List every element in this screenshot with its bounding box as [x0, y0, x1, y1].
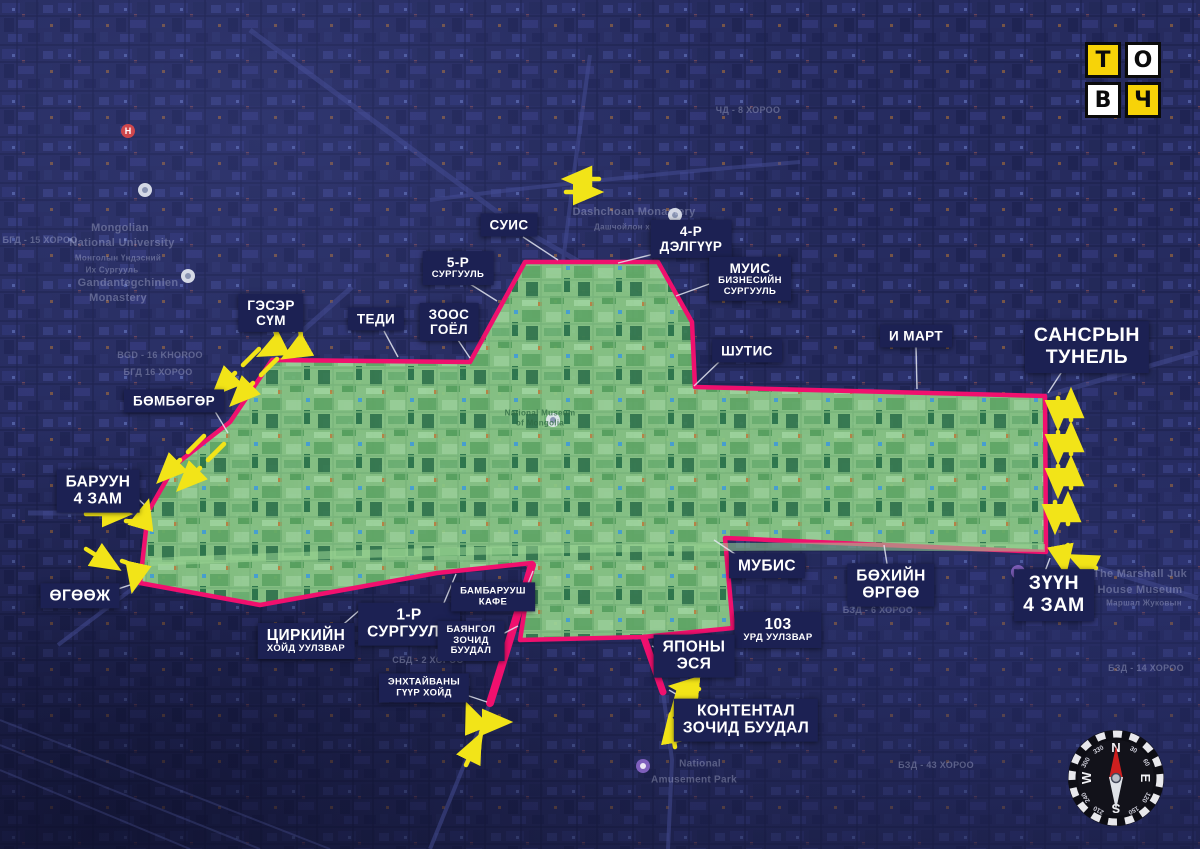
compass-e: E: [1138, 774, 1153, 783]
map-label-enkhtaivany: ЭНХТАЙВАНЫГҮҮР ХОЙД: [379, 673, 469, 702]
basemap-label: National University: [69, 237, 174, 249]
map-label-line: КАФЕ: [460, 597, 526, 608]
map-label-line: ЦИРКИЙН: [267, 627, 346, 644]
map-label-sansryn-tunel: САНСРЫНТУНЕЛЬ: [1025, 321, 1149, 373]
annotated-satellite-map: H: [0, 0, 1200, 849]
map-label-ogooj: ӨГӨӨЖ: [41, 583, 120, 608]
map-label-tedi: ТЕДИ: [348, 307, 404, 330]
logo-tile: Ч: [1125, 82, 1161, 118]
map-label-e-mart: И МАРТ: [880, 324, 952, 347]
basemap-label: House Museum: [1098, 584, 1183, 596]
map-pin-poi: [138, 183, 152, 197]
map-label-line: 4 ЗАМ: [1023, 595, 1085, 617]
map-label-line: ХОЙД УУЛЗВАР: [267, 644, 346, 655]
map-label-line: СУИС: [489, 217, 528, 232]
map-label-line: ГҮҮР ХОЙД: [388, 688, 460, 699]
logo-tile: Т: [1085, 42, 1121, 78]
map-label-line: И МАРТ: [889, 328, 943, 343]
map-pin-park: [636, 759, 650, 773]
basemap-label: BGD - 16 KHOROO: [117, 350, 203, 360]
map-label-bokhiin-orgoo: БӨХИЙНӨРГӨӨ: [847, 564, 934, 607]
basemap-label: Их Сургууль: [86, 266, 139, 275]
map-label-line: ӨГӨӨЖ: [50, 587, 111, 604]
map-label-line: УРД УУЛЗВАР: [743, 633, 812, 644]
map-label-zoos-goyol: ЗООСГОЁЛ: [420, 303, 479, 341]
map-label-tsirkiin: ЦИРКИЙНХОЙД УУЛЗВАР: [258, 623, 355, 659]
basemap-label: Mongolian: [91, 222, 149, 234]
basemap-label: БЗД - 43 ХОРОО: [898, 760, 974, 770]
map-label-line: ЯПОНЫ: [663, 639, 726, 656]
map-pin-glyph: H: [125, 126, 132, 136]
basemap-label: National Museum: [505, 409, 576, 418]
basemap-label: БЗД - 14 ХОРОО: [1108, 663, 1184, 673]
basemap-label: ЧД - 8 ХОРОО: [716, 105, 781, 115]
basemap-label: Монголын Үндэсний: [75, 254, 161, 263]
map-label-delguur-4: 4-РДЭЛГҮҮР: [651, 220, 732, 258]
map-label-urd-103: 103УРД УУЛЗВАР: [734, 612, 821, 648]
basemap-label: Monastery: [89, 292, 147, 304]
map-label-line: СҮМ: [247, 313, 294, 328]
map-label-line: ГЭСЭР: [247, 298, 294, 313]
map-label-line: ЗООС: [429, 307, 470, 322]
map-label-line: КОНТЕНТАЛ: [683, 703, 809, 720]
map-label-bayangol: БАЯНГОЛЗОЧИДБУУДАЛ: [438, 621, 505, 661]
map-label-line: БӨХИЙН: [856, 568, 925, 585]
map-label-kontental: КОНТЕНТАЛЗОЧИД БУУДАЛ: [674, 699, 818, 742]
basemap-label: БГД 16 ХОРОО: [123, 367, 192, 377]
map-label-line: МУБИС: [738, 557, 796, 574]
map-label-line: БАРУУН: [66, 474, 131, 491]
map-label-line: ТЕДИ: [357, 311, 395, 326]
map-pin-poi: [181, 269, 195, 283]
map-label-line: ГОЁЛ: [429, 322, 470, 337]
map-label-muis: МУИСБИЗНЕСИЙНСУРГУУЛЬ: [709, 257, 791, 301]
map-label-line: 4 ЗАМ: [66, 491, 131, 508]
map-pin-hospital: H: [121, 124, 135, 138]
logo-tile: О: [1125, 42, 1161, 78]
map-label-zuun-4-zam: ЗҮҮН4 ЗАМ: [1014, 569, 1094, 621]
map-label-line: ШУТИС: [721, 343, 773, 358]
pointer-line-e-mart: [916, 347, 917, 389]
map-label-surguuli-5: 5-РСУРГУУЛЬ: [423, 251, 494, 285]
compass-w: W: [1079, 771, 1094, 784]
map-label-mubis: МУБИС: [729, 553, 805, 578]
map-label-line: САНСРЫН: [1034, 325, 1140, 347]
basemap-label: Маршал Жуковын: [1106, 599, 1182, 608]
basemap-label: Dashchoan Monastery: [572, 206, 695, 218]
map-label-line: ЭСЯ: [663, 656, 726, 673]
map-label-baruun-4-zam: БАРУУН4 ЗАМ: [57, 470, 140, 513]
basemap-label: Amusement Park: [651, 775, 737, 786]
map-label-line: МУИС: [718, 261, 782, 276]
tovch-logo: ТОВЧ: [1085, 42, 1161, 118]
map-canvas: H: [0, 0, 1200, 849]
map-label-geser-sum: ГЭСЭРСҮМ: [238, 294, 303, 332]
map-label-line: ДЭЛГҮҮР: [660, 239, 723, 254]
basemap-label: БГД - 15 ХОРОО: [2, 235, 77, 245]
basemap-label: National: [679, 759, 721, 770]
basemap-label: Gandantegchinlen: [78, 277, 179, 289]
map-label-suis: СУИС: [480, 213, 537, 236]
map-label-line: ӨРГӨӨ: [856, 585, 925, 602]
map-label-line: 103: [743, 616, 812, 633]
map-label-line: СУРГУУЛЬ: [718, 287, 782, 298]
compass-hub: [1112, 774, 1121, 783]
map-label-bombogor: БӨМБӨГӨР: [124, 389, 224, 412]
map-label-yapony-esya: ЯПОНЫЭСЯ: [654, 635, 735, 678]
map-label-bambaruush: БАМБАРУУШКАФЕ: [451, 582, 535, 611]
basemap-label: The Marshall Juk: [1093, 568, 1187, 580]
map-label-line: ТУНЕЛЬ: [1034, 347, 1140, 369]
compass: 3060120150210240300330 N E S W: [1060, 722, 1172, 834]
map-label-line: ЗҮҮН: [1023, 573, 1085, 595]
basemap-label: БЗД - 6 ХОРОО: [843, 605, 913, 615]
map-label-shutis: ШУТИС: [712, 339, 782, 362]
logo-tile: В: [1085, 82, 1121, 118]
map-label-line: 5-Р: [432, 255, 485, 270]
map-label-line: БУУДАЛ: [447, 646, 496, 657]
basemap-label: of Mongolia: [516, 419, 564, 428]
map-label-line: 4-Р: [660, 224, 723, 239]
map-label-line: БӨМБӨГӨР: [133, 393, 215, 408]
map-label-line: СУРГУУЛЬ: [432, 270, 485, 281]
map-label-line: ЗОЧИД БУУДАЛ: [683, 720, 809, 737]
